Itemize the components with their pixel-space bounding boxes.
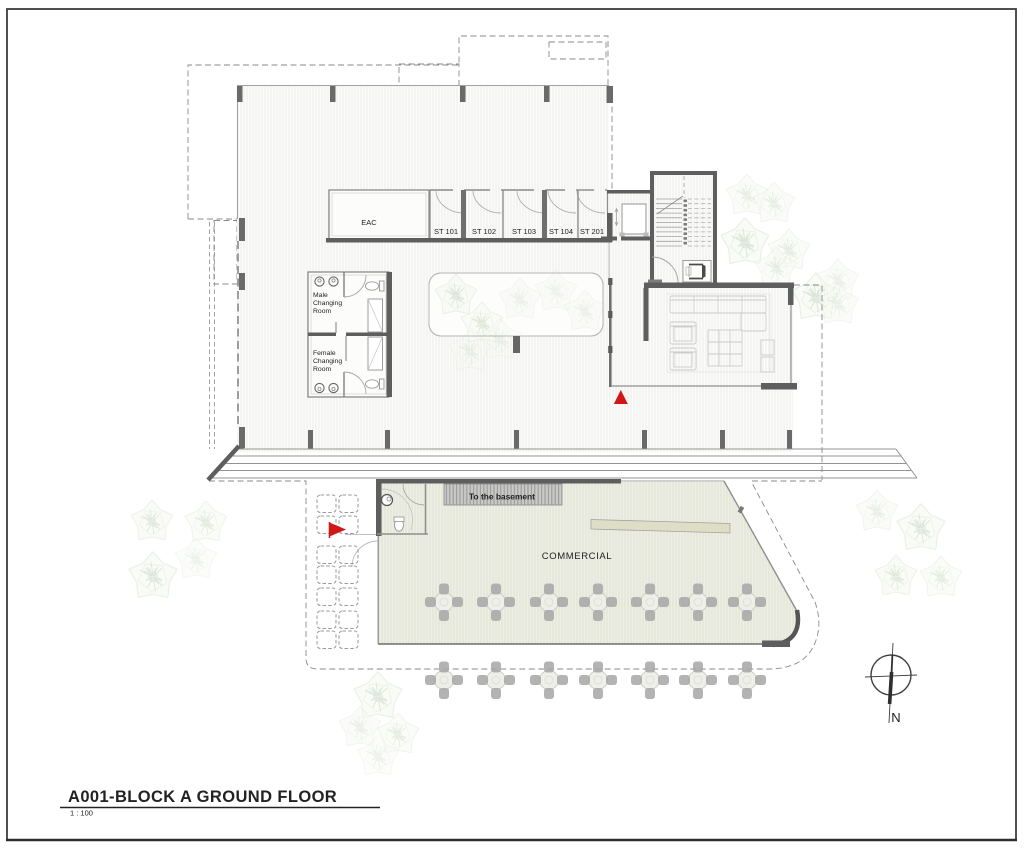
svg-text:Room: Room — [313, 308, 331, 315]
svg-text:Changing: Changing — [313, 358, 342, 365]
svg-text:Female: Female — [313, 350, 336, 357]
svg-text:ST 104: ST 104 — [549, 227, 573, 236]
svg-text:N: N — [891, 710, 900, 725]
svg-text:Male: Male — [313, 292, 328, 299]
svg-text:ST 103: ST 103 — [512, 227, 536, 236]
svg-text:ST 102: ST 102 — [472, 227, 496, 236]
svg-text:ST 101: ST 101 — [434, 227, 458, 236]
svg-text:COMMERCIAL: COMMERCIAL — [542, 551, 612, 562]
svg-text:EAC: EAC — [361, 218, 377, 227]
svg-text:Room: Room — [313, 366, 331, 373]
svg-text:1 : 100: 1 : 100 — [70, 809, 93, 818]
svg-text:Changing: Changing — [313, 300, 342, 307]
svg-text:A001-BLOCK A GROUND FLOOR: A001-BLOCK A GROUND FLOOR — [68, 788, 337, 806]
svg-text:To the basement: To the basement — [469, 492, 535, 502]
svg-text:ST 201: ST 201 — [580, 227, 604, 236]
